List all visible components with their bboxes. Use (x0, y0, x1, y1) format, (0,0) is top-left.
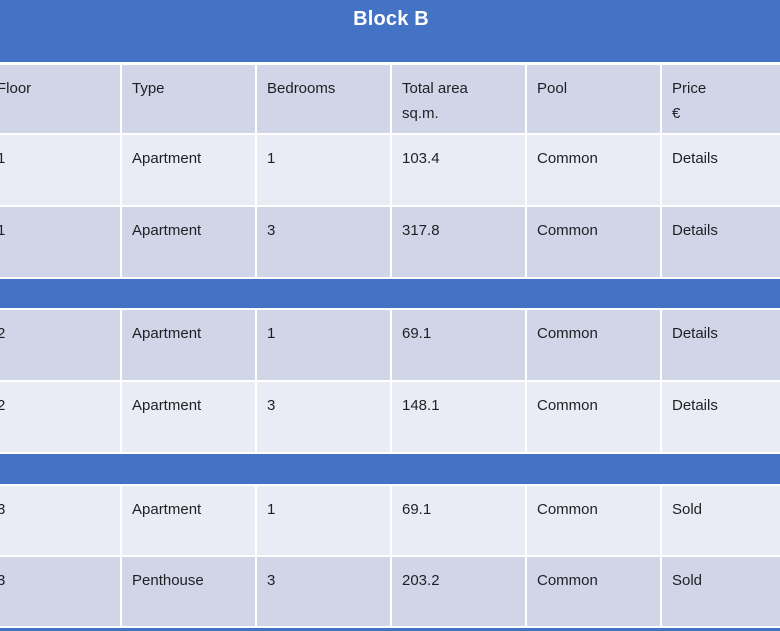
column-header-bedrooms: Bedrooms (257, 65, 390, 133)
table-row: 3 Apartment 1 69.1 Common Sold (0, 486, 780, 555)
table-row: 1 Apartment 1 103.4 Common Details (0, 135, 780, 205)
cell-pool: Common (527, 207, 660, 277)
column-header-label: Type (132, 76, 249, 101)
cell-total-area: 69.1 (392, 310, 525, 380)
cell-bedrooms: 3 (257, 382, 390, 452)
column-header-sublabel: sq.m. (402, 101, 519, 126)
column-header-label: Pool (537, 76, 654, 101)
table-header-row: Floor Type Bedrooms Total area sq.m. Poo… (0, 65, 780, 133)
cell-pool: Common (527, 135, 660, 205)
cell-floor: 1 (0, 207, 120, 277)
cell-type: Apartment (122, 310, 255, 380)
column-header-label: Bedrooms (267, 76, 384, 101)
cell-bedrooms: 1 (257, 486, 390, 555)
column-header-total-area: Total area sq.m. (392, 65, 525, 133)
units-table: Block B Floor Type Bedrooms Total area s… (0, 0, 780, 631)
cell-total-area: 203.2 (392, 557, 525, 626)
details-link[interactable]: Details (662, 382, 780, 452)
table-title-bar: Block B (0, 0, 780, 62)
column-header-label: Total area (402, 76, 519, 101)
column-header-label: Floor (0, 76, 114, 101)
cell-total-area: 69.1 (392, 486, 525, 555)
block-b-table-view: Block B Floor Type Bedrooms Total area s… (0, 0, 780, 631)
floor-separator-bar (0, 279, 780, 308)
cell-total-area: 317.8 (392, 207, 525, 277)
cell-total-area: 103.4 (392, 135, 525, 205)
cell-bedrooms: 1 (257, 135, 390, 205)
sold-status: Sold (662, 486, 780, 555)
column-header-sublabel: € (672, 101, 780, 126)
cell-bedrooms: 3 (257, 207, 390, 277)
cell-pool: Common (527, 310, 660, 380)
details-link[interactable]: Details (662, 135, 780, 205)
cell-pool: Common (527, 382, 660, 452)
cell-type: Apartment (122, 135, 255, 205)
cell-pool: Common (527, 557, 660, 626)
table-row: 1 Apartment 3 317.8 Common Details (0, 207, 780, 277)
sold-status: Sold (662, 557, 780, 626)
floor-separator-bar (0, 454, 780, 484)
details-link[interactable]: Details (662, 310, 780, 380)
table-title: Block B (353, 8, 429, 31)
cell-type: Apartment (122, 382, 255, 452)
column-header-type: Type (122, 65, 255, 133)
column-header-floor: Floor (0, 65, 120, 133)
table-row: 2 Apartment 3 148.1 Common Details (0, 382, 780, 452)
column-header-label: Price (672, 76, 780, 101)
cell-type: Apartment (122, 207, 255, 277)
cell-bedrooms: 1 (257, 310, 390, 380)
cell-pool: Common (527, 486, 660, 555)
column-header-pool: Pool (527, 65, 660, 133)
details-link[interactable]: Details (662, 207, 780, 277)
cell-floor: 3 (0, 486, 120, 555)
cell-floor: 2 (0, 382, 120, 452)
cell-type: Penthouse (122, 557, 255, 626)
cell-floor: 3 (0, 557, 120, 626)
cell-type: Apartment (122, 486, 255, 555)
cell-bedrooms: 3 (257, 557, 390, 626)
cell-floor: 1 (0, 135, 120, 205)
cell-floor: 2 (0, 310, 120, 380)
table-row: 2 Apartment 1 69.1 Common Details (0, 310, 780, 380)
table-row: 3 Penthouse 3 203.2 Common Sold (0, 557, 780, 626)
column-header-price: Price € (662, 65, 780, 133)
cell-total-area: 148.1 (392, 382, 525, 452)
